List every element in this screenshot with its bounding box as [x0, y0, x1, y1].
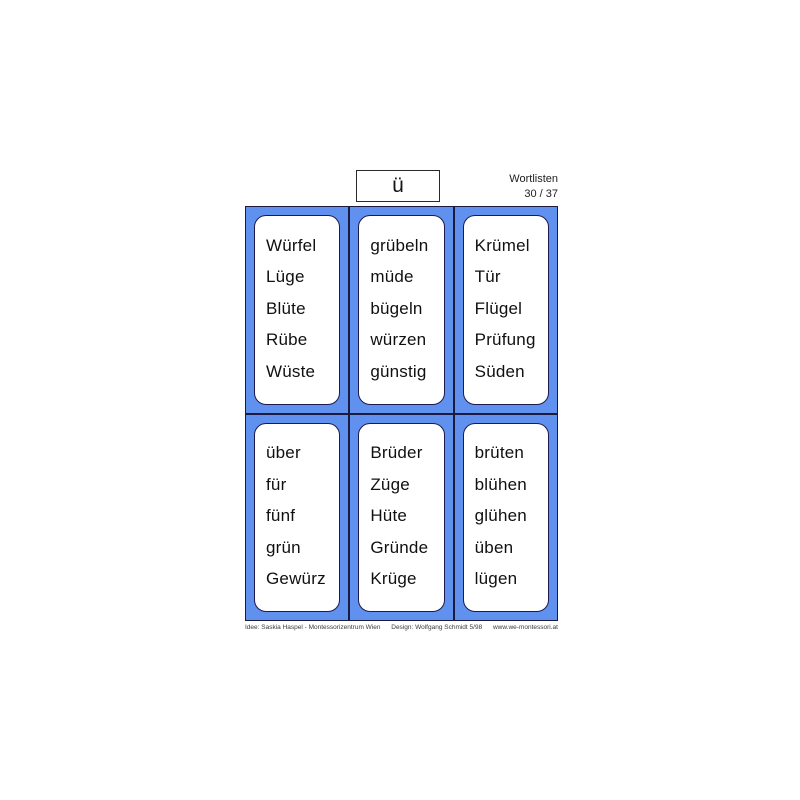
- word-card: grübeln müde bügeln würzen günstig: [358, 215, 444, 405]
- worksheet-page: ü Wortlisten 30 / 37 Würfel Lüge Blüte R…: [0, 0, 800, 800]
- word: grübeln: [370, 236, 440, 256]
- word: glühen: [475, 506, 545, 526]
- footer-idea: Idee: Saskia Haspel - Montessorizentrum …: [245, 624, 380, 632]
- word: würzen: [370, 330, 440, 350]
- word: üben: [475, 538, 545, 558]
- word: Hüte: [370, 506, 440, 526]
- word: Gewürz: [266, 569, 336, 589]
- word: Prüfung: [475, 330, 545, 350]
- word: grün: [266, 538, 336, 558]
- word-card-cell: Krümel Tür Flügel Prüfung Süden: [454, 206, 558, 414]
- word: Krüge: [370, 569, 440, 589]
- page-header-info: Wortlisten 30 / 37: [460, 172, 558, 202]
- word-card: über für fünf grün Gewürz: [254, 423, 340, 613]
- word-card-cell: Würfel Lüge Blüte Rübe Wüste: [245, 206, 349, 414]
- word-card: Brüder Züge Hüte Gründe Krüge: [358, 423, 444, 613]
- word-card: brüten blühen glühen üben lügen: [463, 423, 549, 613]
- word-card: Würfel Lüge Blüte Rübe Wüste: [254, 215, 340, 405]
- word: müde: [370, 267, 440, 287]
- word: Gründe: [370, 538, 440, 558]
- word: für: [266, 475, 336, 495]
- word: Krümel: [475, 236, 545, 256]
- page-number: 30 / 37: [460, 187, 558, 202]
- word: fünf: [266, 506, 336, 526]
- word: über: [266, 443, 336, 463]
- word: Lüge: [266, 267, 336, 287]
- page-title: Wortlisten: [460, 172, 558, 187]
- word-card-grid: Würfel Lüge Blüte Rübe Wüste grübeln müd…: [245, 206, 558, 621]
- letter-label: ü: [392, 174, 404, 198]
- word: Wüste: [266, 362, 336, 382]
- word-card-cell: Brüder Züge Hüte Gründe Krüge: [349, 414, 453, 622]
- word-card-cell: brüten blühen glühen üben lügen: [454, 414, 558, 622]
- footer-credits: Idee: Saskia Haspel - Montessorizentrum …: [245, 624, 558, 632]
- word: lügen: [475, 569, 545, 589]
- word: bügeln: [370, 299, 440, 319]
- letter-box: ü: [356, 170, 440, 202]
- word: Brüder: [370, 443, 440, 463]
- word: Süden: [475, 362, 545, 382]
- footer-website: www.we-montessori.at: [493, 624, 558, 632]
- footer-design: Design: Wolfgang Schmidt 5/98: [391, 624, 482, 632]
- word-card: Krümel Tür Flügel Prüfung Süden: [463, 215, 549, 405]
- word: Würfel: [266, 236, 336, 256]
- word-card-cell: über für fünf grün Gewürz: [245, 414, 349, 622]
- word-card-cell: grübeln müde bügeln würzen günstig: [349, 206, 453, 414]
- word: Flügel: [475, 299, 545, 319]
- word: brüten: [475, 443, 545, 463]
- word: Blüte: [266, 299, 336, 319]
- word: Züge: [370, 475, 440, 495]
- word: Rübe: [266, 330, 336, 350]
- word: blühen: [475, 475, 545, 495]
- word: Tür: [475, 267, 545, 287]
- word: günstig: [370, 362, 440, 382]
